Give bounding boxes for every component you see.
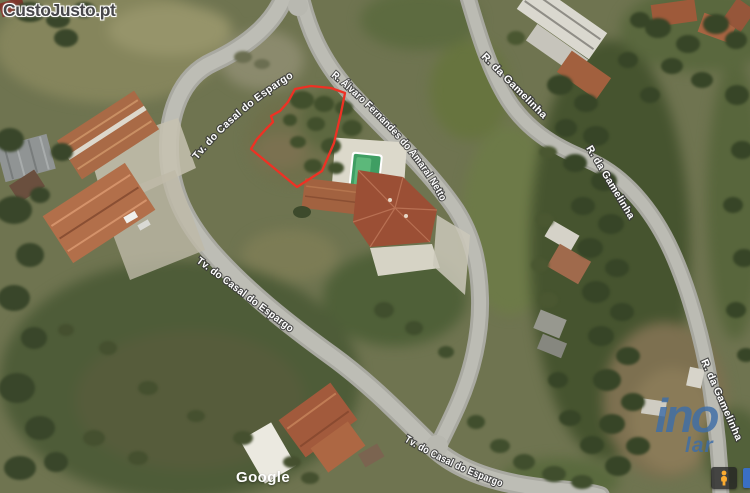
google-logo: Google: [236, 469, 290, 486]
agency-watermark-line1: ino: [655, 392, 716, 439]
pegman-button[interactable]: [711, 467, 737, 489]
agency-watermark-line2: lar: [685, 435, 716, 456]
pegman-icon: [718, 470, 730, 486]
satellite-imagery: Tv. do Casal do Espargo Tv. do Casal do …: [0, 0, 750, 493]
custojusto-watermark: CustoJusto.pt: [3, 0, 115, 21]
satellite-map-view[interactable]: Tv. do Casal do Espargo Tv. do Casal do …: [0, 0, 750, 493]
agency-watermark: ino lar: [655, 392, 716, 456]
map-control-partial[interactable]: [743, 468, 750, 488]
